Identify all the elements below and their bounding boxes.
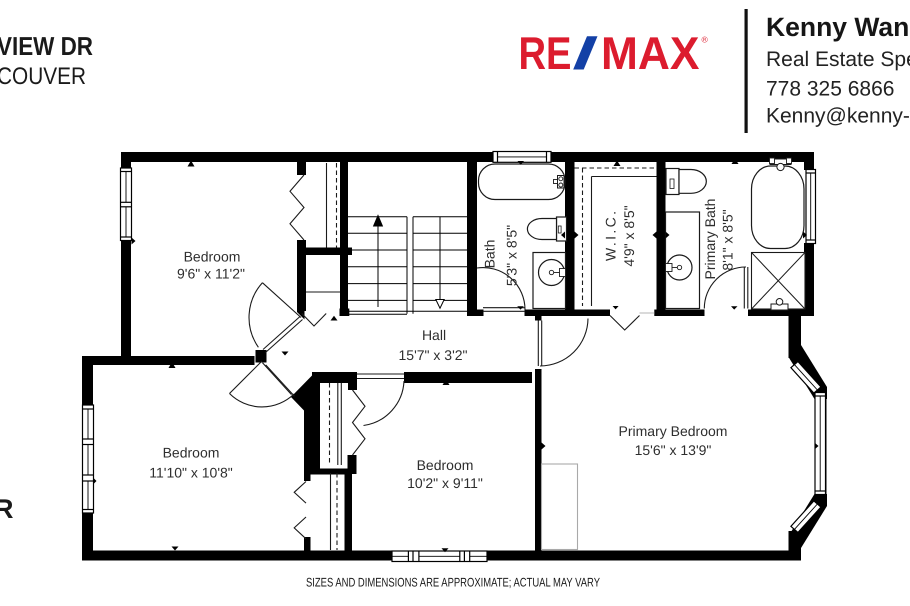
svg-text:Primary Bath: Primary Bath (702, 199, 718, 280)
svg-text:COUVER: COUVER (0, 63, 86, 90)
svg-text:Bath: Bath (482, 240, 498, 269)
svg-text:Bedroom: Bedroom (184, 249, 241, 265)
svg-text:15'6" x 13'9": 15'6" x 13'9" (635, 442, 712, 458)
svg-text:Primary Bedroom: Primary Bedroom (619, 423, 728, 439)
svg-text:R: R (0, 494, 14, 524)
svg-text:VIEW DR: VIEW DR (0, 31, 93, 61)
svg-text:®: ® (702, 35, 709, 45)
svg-text:RE: RE (519, 27, 572, 79)
svg-text:8'1" x 8'5": 8'1" x 8'5" (720, 209, 736, 270)
svg-text:Hall: Hall (422, 327, 446, 343)
svg-text:Bedroom: Bedroom (417, 457, 474, 473)
svg-text:W.I.C.: W.I.C. (603, 211, 619, 261)
svg-text:Kenny@kenny-wang.com: Kenny@kenny-wang.com (766, 105, 910, 128)
svg-text:11'10" x 10'8": 11'10" x 10'8" (149, 465, 233, 481)
svg-text:10'2" x 9'11": 10'2" x 9'11" (407, 475, 483, 491)
svg-text:5'3" x 8'5": 5'3" x 8'5" (504, 225, 520, 286)
svg-text:Real Estate Specialist: Real Estate Specialist (766, 48, 910, 71)
svg-text:15'7" x 3'2": 15'7" x 3'2" (399, 347, 468, 363)
svg-text:SIZES AND DIMENSIONS ARE APPRO: SIZES AND DIMENSIONS ARE APPROXIMATE; AC… (306, 576, 601, 590)
svg-text:9'6" x 11'2": 9'6" x 11'2" (177, 266, 245, 282)
svg-text:778 325 6866: 778 325 6866 (766, 78, 894, 101)
svg-text:MAX: MAX (601, 27, 700, 79)
svg-text:4'9" x 8'5": 4'9" x 8'5" (621, 205, 637, 266)
svg-text:Kenny Wang: Kenny Wang (766, 12, 910, 42)
svg-text:Bedroom: Bedroom (163, 445, 220, 461)
